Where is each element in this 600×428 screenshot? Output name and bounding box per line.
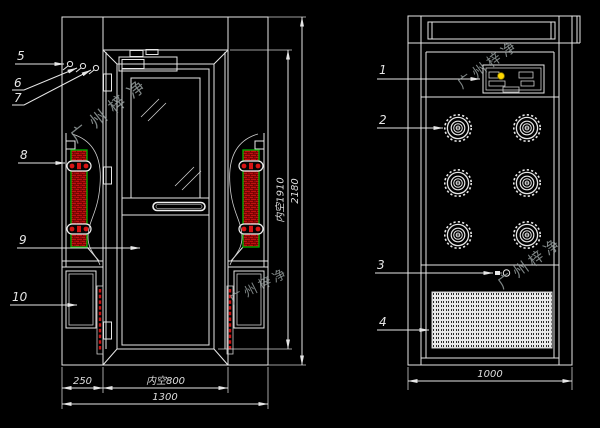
nozzle-column-right xyxy=(230,134,263,265)
callout-5-label: 5 xyxy=(17,49,25,63)
callout-2: 2 xyxy=(377,113,443,128)
dim-clear-height-text: 内空1910 xyxy=(275,177,287,222)
door-handle xyxy=(153,203,205,211)
dim-total-width: 1300 xyxy=(62,392,268,404)
callout-10-label: 10 xyxy=(12,290,28,304)
callout-7-label: 7 xyxy=(14,91,22,105)
dim-width-left-text: 250 xyxy=(73,376,92,387)
dim-clear-height: 内空1910 xyxy=(275,50,289,349)
fan-nozzles xyxy=(445,115,540,248)
dim-door-clear-width: 内空800 xyxy=(103,375,228,388)
callout-1-label: 1 xyxy=(379,63,387,77)
watermark-text: 广州梓净 xyxy=(67,73,155,148)
callout-8: 8 xyxy=(18,148,65,163)
glass-hatch-marks xyxy=(141,99,201,190)
fan-nozzle xyxy=(445,222,471,248)
air-nozzle xyxy=(239,161,263,171)
dim-depth-total-text: 1000 xyxy=(477,369,502,380)
side-fitting-right xyxy=(255,141,264,149)
dim-total-width-text: 1300 xyxy=(152,392,177,403)
front-elevation-view: 5 6 7 8 9 10 250 xyxy=(10,17,306,409)
dim-width-left: 250 xyxy=(62,376,103,388)
callout-3-label: 3 xyxy=(377,258,385,272)
callout-5: 5 xyxy=(15,49,64,64)
air-nozzle xyxy=(67,161,91,171)
callout-6-label: 6 xyxy=(14,76,22,90)
callout-6: 6 xyxy=(12,68,77,90)
fan-nozzle xyxy=(514,222,540,248)
dim-door-clear-width-text: 内空800 xyxy=(146,375,185,387)
cad-drawing-canvas: 5 6 7 8 9 10 250 xyxy=(0,0,600,428)
screw-icon xyxy=(63,61,73,70)
air-nozzle xyxy=(67,224,91,234)
seal-strip-left xyxy=(97,286,103,354)
callout-10: 10 xyxy=(10,290,77,305)
screw-icon xyxy=(76,63,86,72)
door-closer xyxy=(119,50,177,72)
air-nozzle xyxy=(239,224,263,234)
callout-7: 7 xyxy=(12,70,91,105)
dim-total-height: 2180 xyxy=(290,17,302,365)
dim-total-height-text: 2180 xyxy=(290,178,301,203)
callout-4-label: 4 xyxy=(379,315,387,329)
fan-nozzle xyxy=(514,115,540,141)
fan-nozzle xyxy=(514,170,540,196)
panel-power-button xyxy=(498,73,505,80)
bottom-box-left xyxy=(66,271,96,328)
front-dimensions: 250 内空800 1300 内空1910 2180 xyxy=(62,17,306,409)
screw-icon xyxy=(89,65,99,74)
side-dimensions: 1000 xyxy=(408,367,572,390)
watermark-text: 广州梓净 xyxy=(494,233,566,292)
exhaust-grille xyxy=(432,292,552,348)
callout-8-label: 8 xyxy=(20,148,28,162)
side-fitting-left xyxy=(66,141,75,149)
dim-depth-total: 1000 xyxy=(408,369,572,381)
fan-nozzle xyxy=(445,115,471,141)
callout-9-label: 9 xyxy=(19,233,27,247)
callout-2-label: 2 xyxy=(379,113,387,127)
fan-nozzle xyxy=(445,170,471,196)
nozzle-column-left xyxy=(67,134,100,265)
